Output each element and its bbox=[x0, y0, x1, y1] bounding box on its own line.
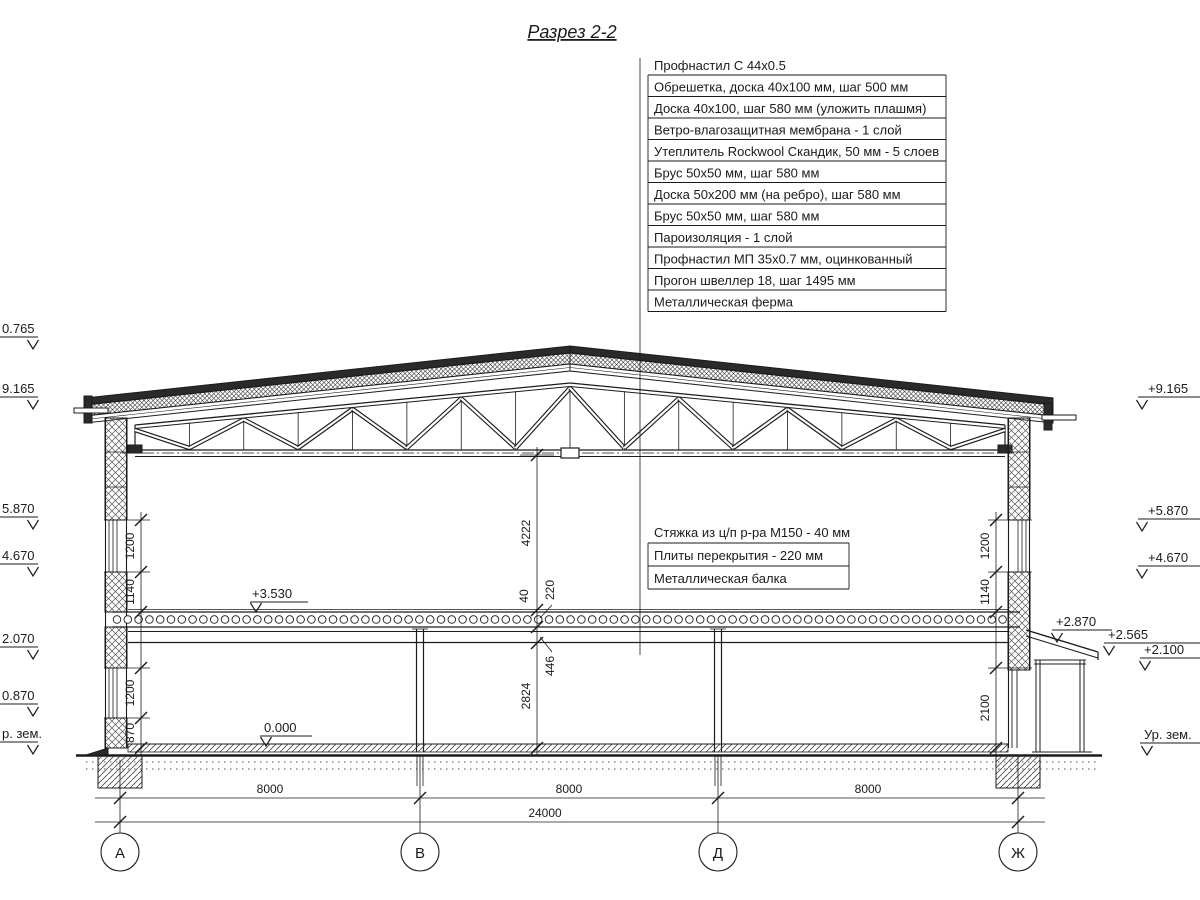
dim-left-3: 870 bbox=[123, 723, 137, 743]
elev-right-0: +9.165 bbox=[1148, 381, 1188, 396]
dim-span-1: 8000 bbox=[257, 782, 284, 796]
dim-span-3: 8000 bbox=[855, 782, 882, 796]
right-door bbox=[1008, 670, 1030, 748]
dimension-labels: 8000 8000 8000 24000 1200 1140 1200 870 … bbox=[123, 519, 992, 820]
dim-center-40: 40 bbox=[517, 589, 531, 603]
dim-center-2824: 2824 bbox=[519, 682, 533, 709]
roof-callout-10: Прогон швеллер 18, шаг 1495 мм bbox=[654, 273, 856, 288]
roof-callout-11: Металлическая ферма bbox=[654, 295, 794, 310]
dim-total: 24000 bbox=[528, 806, 562, 820]
dimension-lines bbox=[95, 447, 1045, 833]
elev-left-2: 5.870 bbox=[2, 501, 35, 516]
dim-center-220: 220 bbox=[543, 580, 557, 600]
grid-axis-d: Д bbox=[713, 845, 723, 862]
elevation-labels-right: +9.165 +5.870 +4.670 +2.870 +2.565 +2.10… bbox=[1056, 381, 1192, 742]
elev-left-1: 9.165 bbox=[2, 381, 35, 396]
ground-floor-elevation: 0.000 bbox=[264, 720, 297, 735]
elev-right-3: +2.870 bbox=[1056, 614, 1096, 629]
roof-callout-3: Ветро-влагозащитная мембрана - 1 слой bbox=[654, 123, 902, 138]
hollow-core-slab-circles bbox=[113, 616, 1006, 624]
dimension-ticks bbox=[114, 449, 1024, 828]
grid-axis-a: А bbox=[115, 845, 125, 862]
roof-callout-7: Брус 50х50 мм, шаг 580 мм bbox=[654, 209, 819, 224]
ground bbox=[76, 744, 1102, 788]
floor-callout-labels: Стяжка из ц/п р-ра М150 - 40 мм Плиты пе… bbox=[654, 525, 850, 586]
roof-callout-5: Брус 50х50 мм, шаг 580 мм bbox=[654, 166, 819, 181]
floor-slab bbox=[112, 610, 1020, 643]
dim-left-1: 1140 bbox=[123, 579, 137, 605]
elev-left-5: 0.870 bbox=[2, 688, 35, 703]
dim-left-2: 1200 bbox=[123, 679, 137, 706]
annex bbox=[1026, 630, 1098, 752]
dim-span-2: 8000 bbox=[556, 782, 583, 796]
roof-callout-0: Профнастил С 44х0.5 bbox=[654, 58, 786, 73]
grid-axis-b: В bbox=[415, 845, 425, 862]
dim-right-0: 1200 bbox=[978, 532, 992, 559]
dim-center-4222: 4222 bbox=[519, 519, 533, 546]
right-wall bbox=[1008, 418, 1030, 748]
drawing-title: Разрез 2-2 bbox=[527, 22, 616, 42]
floor-callout-0: Стяжка из ц/п р-ра М150 - 40 мм bbox=[654, 525, 850, 540]
grid-axis-zh: Ж bbox=[1011, 845, 1025, 862]
elev-right-5: +2.100 bbox=[1144, 642, 1184, 657]
roof-callout-9: Профнастил МП 35х0.7 мм, оцинкованный bbox=[654, 252, 912, 267]
elev-left-3: 4.670 bbox=[2, 548, 35, 563]
roof-callout-6: Доска 50х200 мм (на ребро), шаг 580 мм bbox=[654, 187, 901, 202]
grid-axes bbox=[101, 833, 1037, 871]
second-floor-elevation: +3.530 bbox=[252, 586, 292, 601]
elev-right-2: +4.670 bbox=[1148, 550, 1188, 565]
roof-callout-2: Доска 40х100, шаг 580 мм (уложить плашмя… bbox=[654, 101, 926, 116]
elev-right-6: Ур. зем. bbox=[1144, 727, 1192, 742]
columns bbox=[412, 629, 726, 786]
elev-right-4: +2.565 bbox=[1108, 627, 1148, 642]
floor-callout-2: Металлическая балка bbox=[654, 571, 788, 586]
floor-callout-1: Плиты перекрытия - 220 мм bbox=[654, 548, 823, 563]
dim-right-2: 2100 bbox=[978, 694, 992, 721]
elev-right-1: +5.870 bbox=[1148, 503, 1188, 518]
section-drawing: Профнастил С 44х0.5 Обрешетка, доска 40х… bbox=[0, 0, 1200, 900]
truss-center-gusset bbox=[561, 448, 579, 458]
right-window-upper bbox=[1008, 520, 1030, 572]
dim-right-1: 1140 bbox=[978, 579, 992, 605]
grid-axis-labels: А В Д Ж bbox=[115, 845, 1025, 862]
drawing-canvas: Профнастил С 44х0.5 Обрешетка, доска 40х… bbox=[0, 0, 1200, 900]
elev-left-0: 0.765 bbox=[2, 321, 35, 336]
elevation-labels-left: 0.765 9.165 5.870 4.670 2.070 0.870 р. з… bbox=[2, 321, 42, 741]
roof-callout-8: Пароизоляция - 1 слой bbox=[654, 230, 793, 245]
dim-center-446: 446 bbox=[543, 656, 557, 676]
elevation-markers-left bbox=[0, 337, 38, 742]
elevation-markers-right bbox=[1052, 397, 1200, 743]
apron-left bbox=[86, 748, 108, 755]
elev-left-6: р. зем. bbox=[2, 726, 42, 741]
dim-left-0: 1200 bbox=[123, 532, 137, 559]
roof-callout-4: Утеплитель Rockwool Скандик, 50 мм - 5 с… bbox=[654, 144, 939, 159]
roof-callout-1: Обрешетка, доска 40х100 мм, шаг 500 мм bbox=[654, 80, 908, 95]
truss-bearing-left bbox=[128, 445, 142, 453]
elev-left-4: 2.070 bbox=[2, 631, 35, 646]
roof-callout-labels: Профнастил С 44х0.5 Обрешетка, доска 40х… bbox=[654, 58, 939, 310]
